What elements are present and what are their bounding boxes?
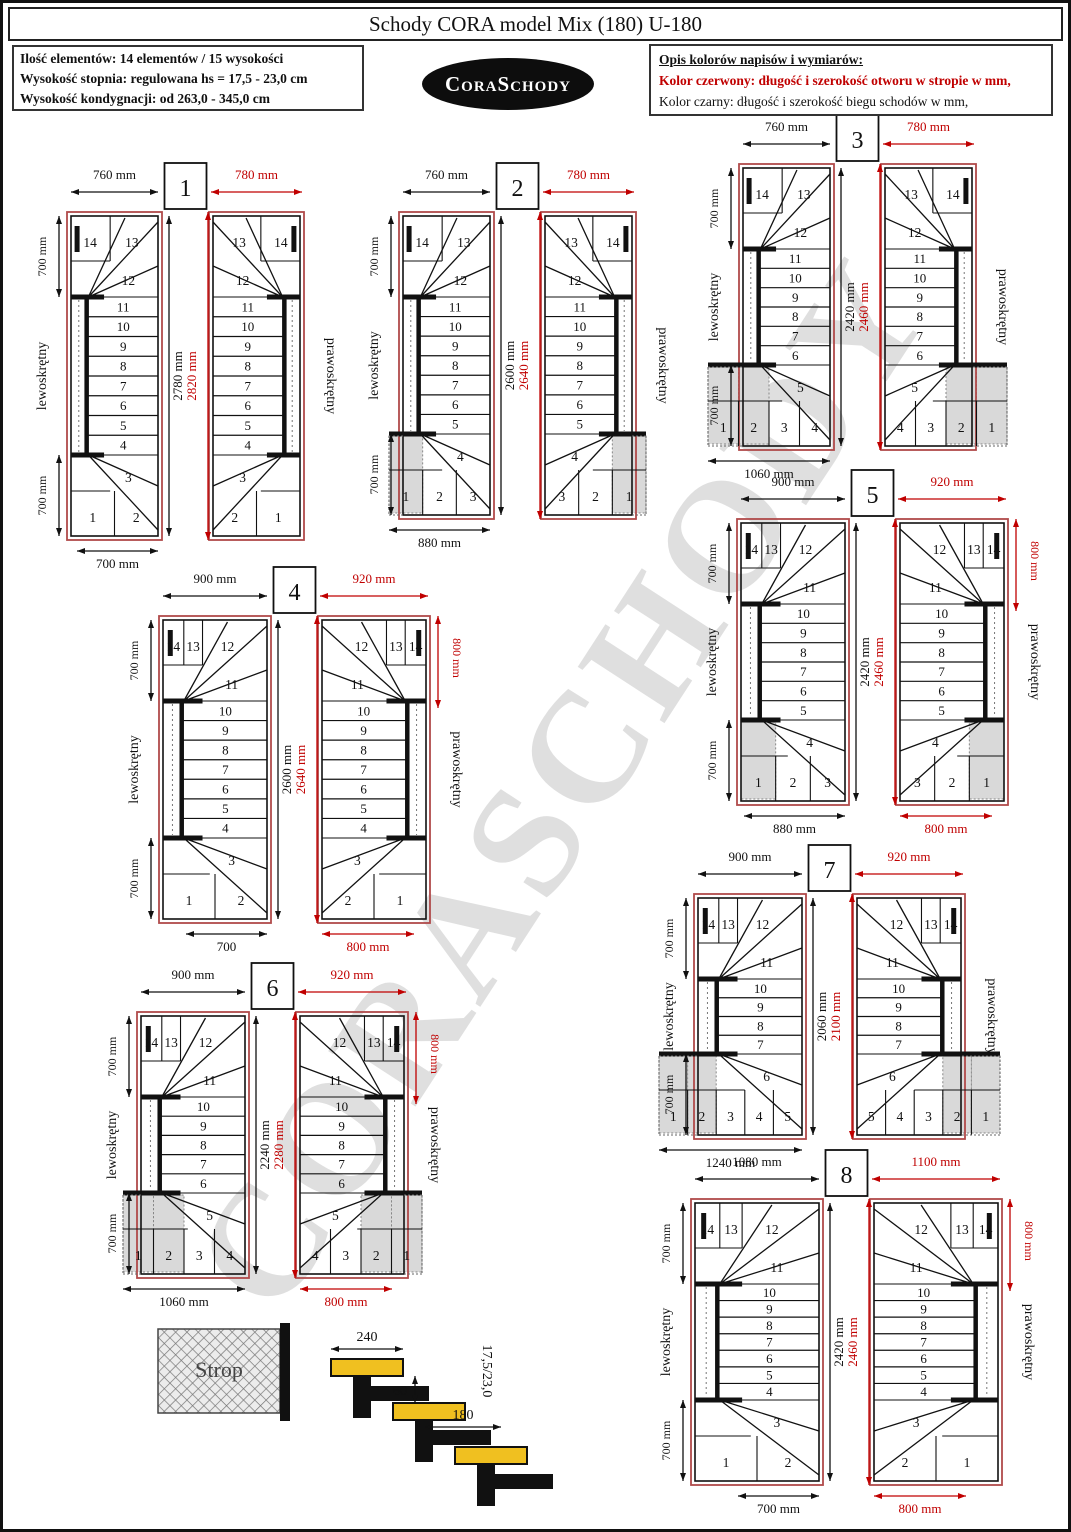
step-number: 2 <box>954 1109 961 1124</box>
step-number: 8 <box>800 645 807 660</box>
dim-side-top: 700 mm <box>707 188 721 228</box>
dim-bottom-black: 1060 mm <box>159 1294 208 1309</box>
step-number: 14 <box>145 1035 159 1050</box>
diagram-number: 3 <box>852 128 864 154</box>
step-number: 10 <box>892 981 905 996</box>
step-number: 12 <box>933 542 947 557</box>
step-number: 4 <box>571 449 578 464</box>
dim-top-red: 780 mm <box>567 167 610 182</box>
dim-top-black: 760 mm <box>93 167 136 182</box>
step-number: 11 <box>203 1073 216 1088</box>
step-number: 10 <box>797 606 810 621</box>
dim-side-top: 700 mm <box>35 236 49 276</box>
step-number: 2 <box>133 510 140 525</box>
step-number: 4 <box>120 438 127 453</box>
step-number: 9 <box>120 339 127 354</box>
direction-label-left: lewoskrętny <box>105 1111 120 1179</box>
diagram-number: 8 <box>841 1163 853 1189</box>
step-number: 13 <box>924 917 938 932</box>
step-number: 7 <box>120 378 127 393</box>
diagram-variant-4: 1413121110987654312141312111098765431249… <box>113 565 476 974</box>
step-number: 14 <box>167 639 181 654</box>
coraschody-logo: CoraSchody <box>422 58 594 110</box>
step-number: 2 <box>958 420 965 435</box>
dim-60: 60 <box>393 1384 407 1399</box>
step-number: 13 <box>232 235 246 250</box>
step-number: 8 <box>120 359 127 374</box>
stair-plan-svg-5: 1413121110987654123141312111098765412359… <box>691 468 1054 851</box>
step-number: 14 <box>387 1035 401 1050</box>
step-number: 10 <box>335 1099 348 1114</box>
direction-label-right: prawoskrętny <box>995 269 1010 345</box>
step-number: 2 <box>165 1248 172 1263</box>
dim-top-red: 1100 mm <box>912 1154 961 1169</box>
step-number: 11 <box>803 580 816 595</box>
step-number: 1 <box>982 1109 989 1124</box>
step-number: 1 <box>988 420 995 435</box>
step-number: 13 <box>564 235 578 250</box>
dim-side-top: 700 mm <box>662 918 676 958</box>
step-number: 6 <box>917 348 924 363</box>
step-number: 9 <box>792 290 799 305</box>
diagram-number: 5 <box>867 483 879 509</box>
dim-bottom-black: 700 <box>217 939 237 954</box>
dim-length-red: 2460 mm <box>845 1317 860 1366</box>
step-number: 3 <box>824 775 831 790</box>
step-number: 6 <box>938 684 945 699</box>
step-number: 7 <box>245 378 252 393</box>
step-number: 13 <box>797 187 811 202</box>
direction-label-left: lewoskrętny <box>35 342 50 410</box>
step-number: 3 <box>773 1415 780 1430</box>
step-number: 12 <box>914 1222 928 1237</box>
stair-plan-svg-7: 1413121110987612345141312111098761234579… <box>648 843 1011 1185</box>
step-number: 4 <box>226 1248 233 1263</box>
step-number: 1 <box>186 893 193 908</box>
step-number: 6 <box>577 397 584 412</box>
step-number: 4 <box>312 1248 319 1263</box>
dim-rise: 17,5/23,0 <box>479 1345 494 1398</box>
step-number: 14 <box>702 917 716 932</box>
dim-length-red: 2640 mm <box>516 341 531 390</box>
step-number: 10 <box>913 271 926 286</box>
step-number: 7 <box>917 329 924 344</box>
dim-240: 240 <box>357 1330 378 1345</box>
step-number: 12 <box>236 273 250 288</box>
step-number: 13 <box>764 542 778 557</box>
dim-right-red: 800 mm <box>1022 1221 1036 1261</box>
step-number: 5 <box>911 380 918 395</box>
step-number: 2 <box>699 1109 706 1124</box>
dim-top-red: 920 mm <box>931 474 974 489</box>
dim-180: 180 <box>453 1408 474 1423</box>
step-number: 5 <box>938 703 945 718</box>
color-legend-box: Opis kolorów napisów i wymiarów: Kolor c… <box>649 44 1053 116</box>
stair-plan-svg-2: 1413121110987654123141312111098765412327… <box>353 161 682 565</box>
dim-side-bottom: 700 mm <box>705 740 719 780</box>
direction-label-right: prawoskrętny <box>1027 624 1042 700</box>
step-number: 14 <box>755 187 769 202</box>
dim-length-black: 2600 mm <box>279 745 294 794</box>
step-number: 13 <box>724 1222 738 1237</box>
step-number: 6 <box>763 1069 770 1084</box>
step-number: 9 <box>757 1000 764 1015</box>
dim-length-black: 2420 mm <box>857 637 872 686</box>
step-number: 14 <box>987 542 1001 557</box>
step-number: 14 <box>979 1222 993 1237</box>
step-number: 6 <box>889 1069 896 1084</box>
dim-length-black: 2420 mm <box>842 282 857 331</box>
step-number: 1 <box>402 489 409 504</box>
step-number: 3 <box>342 1248 349 1263</box>
step-number: 12 <box>908 225 922 240</box>
step-number: 6 <box>245 398 252 413</box>
step-number: 11 <box>242 299 255 314</box>
step-number: 6 <box>360 782 367 797</box>
step-number: 3 <box>239 470 246 485</box>
step-number: 2 <box>373 1248 380 1263</box>
step-number: 3 <box>914 775 921 790</box>
step-number: 12 <box>333 1035 347 1050</box>
step-number: 1 <box>135 1248 142 1263</box>
info-line-elements: Ilość elementów: 14 elementów / 15 wysok… <box>20 49 356 69</box>
step-number: 11 <box>449 299 462 314</box>
dim-length-red: 2280 mm <box>271 1120 286 1169</box>
step-number: 6 <box>452 397 459 412</box>
stair-plan-svg-8: 1413121110987654312141312111098765431281… <box>645 1148 1048 1531</box>
step-number: 3 <box>925 1109 932 1124</box>
dim-bottom-black: 700 mm <box>757 1501 800 1516</box>
direction-label-left: lewoskrętny <box>127 735 142 803</box>
dim-side-top: 700 mm <box>705 543 719 583</box>
dim-top-black: 760 mm <box>425 167 468 182</box>
step-number: 11 <box>760 955 773 970</box>
step-number: 7 <box>757 1037 764 1052</box>
dim-length-red: 2820 mm <box>184 351 199 400</box>
dim-bottom-black: 880 mm <box>773 821 816 836</box>
step-number: 12 <box>221 639 235 654</box>
dim-top-black: 900 mm <box>172 967 215 982</box>
step-number: 6 <box>120 398 127 413</box>
step-number: 8 <box>577 358 584 373</box>
diagram-number: 2 <box>512 176 524 202</box>
step-number: 14 <box>745 542 759 557</box>
step-number: 11 <box>929 580 942 595</box>
step-number: 14 <box>606 235 620 250</box>
dim-side-top: 700 mm <box>659 1223 673 1263</box>
step-number: 2 <box>790 775 797 790</box>
step-number: 10 <box>917 1285 930 1300</box>
dim-top-red: 780 mm <box>907 119 950 134</box>
dim-bottom-black: 880 mm <box>418 535 461 550</box>
stair-plan-svg-6: 1413121110987651234141312111098765123469… <box>91 961 454 1324</box>
dim-side-top: 700 mm <box>105 1036 119 1076</box>
step-number: 11 <box>574 299 587 314</box>
step-number: 9 <box>917 290 924 305</box>
step-number: 11 <box>351 677 364 692</box>
dim-top-black: 1080 mm <box>732 1154 781 1169</box>
step-number: 9 <box>920 1301 927 1316</box>
dim-side-bottom: 700 mm <box>35 475 49 515</box>
step-number: 11 <box>914 251 927 266</box>
step-number: 13 <box>389 639 403 654</box>
parameters-box: Ilość elementów: 14 elementów / 15 wysok… <box>12 45 364 111</box>
step-number: 9 <box>360 723 367 738</box>
step-number: 4 <box>457 449 464 464</box>
step-number: 10 <box>219 703 232 718</box>
step-number: 8 <box>360 742 367 757</box>
step-number: 4 <box>897 1109 904 1124</box>
step-number: 10 <box>763 1285 776 1300</box>
strop-label: Strop <box>195 1357 243 1382</box>
step-number: 7 <box>577 378 584 393</box>
step-number: 3 <box>470 489 477 504</box>
dim-length-red: 2100 mm <box>828 992 843 1041</box>
step-number: 7 <box>360 762 367 777</box>
step-number: 8 <box>792 309 799 324</box>
step-number: 12 <box>765 1222 779 1237</box>
step-side-view: Strop2406017,5/23,0180 <box>153 1309 563 1532</box>
step-number: 4 <box>920 1384 927 1399</box>
step-number: 12 <box>199 1035 213 1050</box>
step-number: 2 <box>785 1455 792 1470</box>
diagram-variant-3: 1413121110987651234141312111098765123437… <box>693 113 1022 501</box>
step-number: 11 <box>886 955 899 970</box>
dim-top-red: 780 mm <box>235 167 278 182</box>
step-number: 11 <box>329 1073 342 1088</box>
step-number: 10 <box>573 319 586 334</box>
drawing-sheet: Schody CORA model Mix (180) U-180 Ilość … <box>0 0 1071 1532</box>
step-number: 4 <box>932 735 939 750</box>
dim-bottom-red: 800 mm <box>925 821 968 836</box>
dim-side-top: 700 mm <box>367 236 381 276</box>
step-number: 9 <box>938 626 945 641</box>
step-number: 7 <box>200 1157 207 1172</box>
step-number: 3 <box>913 1415 920 1430</box>
step-number: 2 <box>436 489 443 504</box>
step-number: 9 <box>200 1118 207 1133</box>
step-number: 10 <box>241 319 254 334</box>
dim-length-red: 2640 mm <box>293 745 308 794</box>
step-number: 1 <box>397 893 404 908</box>
dim-right-red: 800 mm <box>450 638 464 678</box>
step-number: 13 <box>904 187 918 202</box>
step-number: 12 <box>355 639 369 654</box>
step-number: 12 <box>794 225 808 240</box>
step-number: 14 <box>274 235 288 250</box>
direction-label-right: prawoskrętny <box>984 978 999 1054</box>
step-number: 6 <box>920 1351 927 1366</box>
step-number: 10 <box>197 1099 210 1114</box>
diagram-variant-5: 1413121110987654123141312111098765412359… <box>691 468 1054 856</box>
direction-label-left: lewoskrętny <box>705 628 720 696</box>
legend-heading: Opis kolorów napisów i wymiarów: <box>659 49 1043 70</box>
step-number: 10 <box>789 271 802 286</box>
step-number: 7 <box>938 664 945 679</box>
step-number: 3 <box>558 489 565 504</box>
dim-length-black: 2060 mm <box>814 992 829 1041</box>
step-number: 9 <box>895 1000 902 1015</box>
step-number: 7 <box>338 1157 345 1172</box>
step-number: 4 <box>245 438 252 453</box>
direction-label-right: prawoskrętny <box>323 338 338 414</box>
diagram-number: 4 <box>289 580 301 606</box>
dim-length-black: 2600 mm <box>502 341 517 390</box>
step-number: 3 <box>196 1248 203 1263</box>
step-number: 12 <box>756 917 770 932</box>
step-number: 14 <box>415 235 429 250</box>
step-number: 2 <box>345 893 352 908</box>
direction-label-left: lewoskrętny <box>662 982 677 1050</box>
step-number: 6 <box>800 684 807 699</box>
direction-label-left: lewoskrętny <box>367 331 382 399</box>
dim-length-black: 2780 mm <box>170 351 185 400</box>
step-number: 3 <box>781 420 788 435</box>
info-line-step-height: Wysokość stopnia: regulowana hs = 17,5 -… <box>20 69 356 89</box>
step-number: 8 <box>917 309 924 324</box>
dim-length-black: 2240 mm <box>257 1120 272 1169</box>
step-number: 5 <box>577 417 584 432</box>
step-number: 2 <box>238 893 245 908</box>
step-number: 6 <box>200 1176 207 1191</box>
step-number: 5 <box>452 417 459 432</box>
step-number: 11 <box>117 299 130 314</box>
step-number: 5 <box>868 1109 875 1124</box>
diagram-number: 6 <box>267 976 279 1002</box>
diagram-variant-6: 1413121110987651234141312111098765123469… <box>91 961 454 1329</box>
step-number: 2 <box>592 489 599 504</box>
dim-top-black: 900 mm <box>729 849 772 864</box>
step-number: 1 <box>964 1455 971 1470</box>
diagram-variant-1: 1413121110987654312141312111098765431217… <box>21 161 350 591</box>
step-number: 10 <box>449 319 462 334</box>
step-number: 8 <box>920 1318 927 1333</box>
step-number: 7 <box>452 378 459 393</box>
step-number: 13 <box>457 235 471 250</box>
step-number: 2 <box>902 1455 909 1470</box>
step-number: 13 <box>164 1035 178 1050</box>
dim-side-bottom: 700 mm <box>707 385 721 425</box>
dim-length-red: 2460 mm <box>856 282 871 331</box>
step-number: 8 <box>938 645 945 660</box>
dim-side-top: 700 mm <box>127 640 141 680</box>
step-number: 5 <box>797 380 804 395</box>
dim-top-red: 920 mm <box>331 967 374 982</box>
step-number: 4 <box>360 821 367 836</box>
step-number: 13 <box>967 542 981 557</box>
dim-length-red: 2460 mm <box>871 637 886 686</box>
direction-label-right: prawoskrętny <box>449 731 464 807</box>
sheet-title: Schody CORA model Mix (180) U-180 <box>8 7 1063 41</box>
info-line-storey-height: Wysokość kondygnacji: od 263,0 - 345,0 c… <box>20 89 356 109</box>
step-number: 9 <box>452 338 459 353</box>
step-number: 5 <box>360 801 367 816</box>
step-number: 10 <box>357 703 370 718</box>
dim-top-black: 900 mm <box>772 474 815 489</box>
step-number: 8 <box>338 1138 345 1153</box>
dim-bottom-red: 800 mm <box>325 1294 368 1309</box>
step-number: 13 <box>125 235 139 250</box>
step-number: 7 <box>920 1335 927 1350</box>
step-number: 5 <box>245 418 252 433</box>
legend-black-meaning: Kolor czarny: długość i szerokość biegu … <box>659 91 1043 112</box>
step-number: 11 <box>225 677 238 692</box>
dim-top-black: 900 mm <box>194 571 237 586</box>
step-number: 14 <box>701 1222 715 1237</box>
dim-side-bottom: 700 mm <box>659 1420 673 1460</box>
step-number: 4 <box>766 1384 773 1399</box>
step-number: 5 <box>206 1208 213 1223</box>
step-number: 3 <box>354 853 361 868</box>
step-number: 5 <box>222 801 229 816</box>
step-number: 5 <box>784 1109 791 1124</box>
step-number: 9 <box>245 339 252 354</box>
step-number: 1 <box>626 489 633 504</box>
direction-label-right: prawoskrętny <box>427 1107 442 1183</box>
step-number: 1 <box>89 510 96 525</box>
dim-bottom-red: 800 mm <box>347 939 390 954</box>
dim-bottom-red: 800 mm <box>899 1501 942 1516</box>
step-number: 9 <box>222 723 229 738</box>
step-number: 6 <box>766 1351 773 1366</box>
step-number: 3 <box>927 420 934 435</box>
step-number: 8 <box>200 1138 207 1153</box>
step-number: 3 <box>228 853 235 868</box>
direction-label-right: prawoskrętny <box>1021 1304 1036 1380</box>
step-number: 5 <box>800 703 807 718</box>
step-number: 1 <box>275 510 282 525</box>
step-number: 4 <box>811 420 818 435</box>
step-number: 6 <box>792 348 799 363</box>
direction-label-left: lewoskrętny <box>707 273 722 341</box>
step-number: 7 <box>222 762 229 777</box>
dim-length-black: 2420 mm <box>831 1317 846 1366</box>
step-number: 8 <box>245 359 252 374</box>
stair-plan-svg-3: 1413121110987651234141312111098765123437… <box>693 113 1022 496</box>
legend-red-meaning: Kolor czerwony: długość i szerokość otwo… <box>659 70 1043 91</box>
step-number: 2 <box>750 420 757 435</box>
step-number: 1 <box>983 775 990 790</box>
diagram-variant-2: 1413121110987654123141312111098765412327… <box>353 161 682 570</box>
step-number: 8 <box>452 358 459 373</box>
step-number: 13 <box>721 917 735 932</box>
step-number: 4 <box>806 735 813 750</box>
diagram-variant-7: 1413121110987612345141312111098761234579… <box>648 843 1011 1190</box>
dim-side-bottom: 700 mm <box>662 1074 676 1114</box>
dim-top-black: 760 mm <box>765 119 808 134</box>
step-number: 1 <box>723 1455 730 1470</box>
step-number: 11 <box>770 1260 783 1275</box>
dim-top-red: 920 mm <box>353 571 396 586</box>
dim-top-red: 920 mm <box>888 849 931 864</box>
step-number: 8 <box>757 1018 764 1033</box>
dim-side-bottom: 700 mm <box>127 858 141 898</box>
step-number: 11 <box>789 251 802 266</box>
step-number: 12 <box>890 917 904 932</box>
step-number: 7 <box>766 1335 773 1350</box>
step-number: 9 <box>800 626 807 641</box>
dim-right-red: 800 mm <box>428 1034 442 1074</box>
step-number: 8 <box>766 1318 773 1333</box>
step-number: 12 <box>568 273 582 288</box>
step-number: 4 <box>897 420 904 435</box>
step-number: 7 <box>792 329 799 344</box>
step-number: 12 <box>454 273 468 288</box>
step-number: 1 <box>403 1248 410 1263</box>
step-number: 14 <box>946 187 960 202</box>
step-number: 14 <box>944 917 958 932</box>
step-number: 7 <box>800 664 807 679</box>
